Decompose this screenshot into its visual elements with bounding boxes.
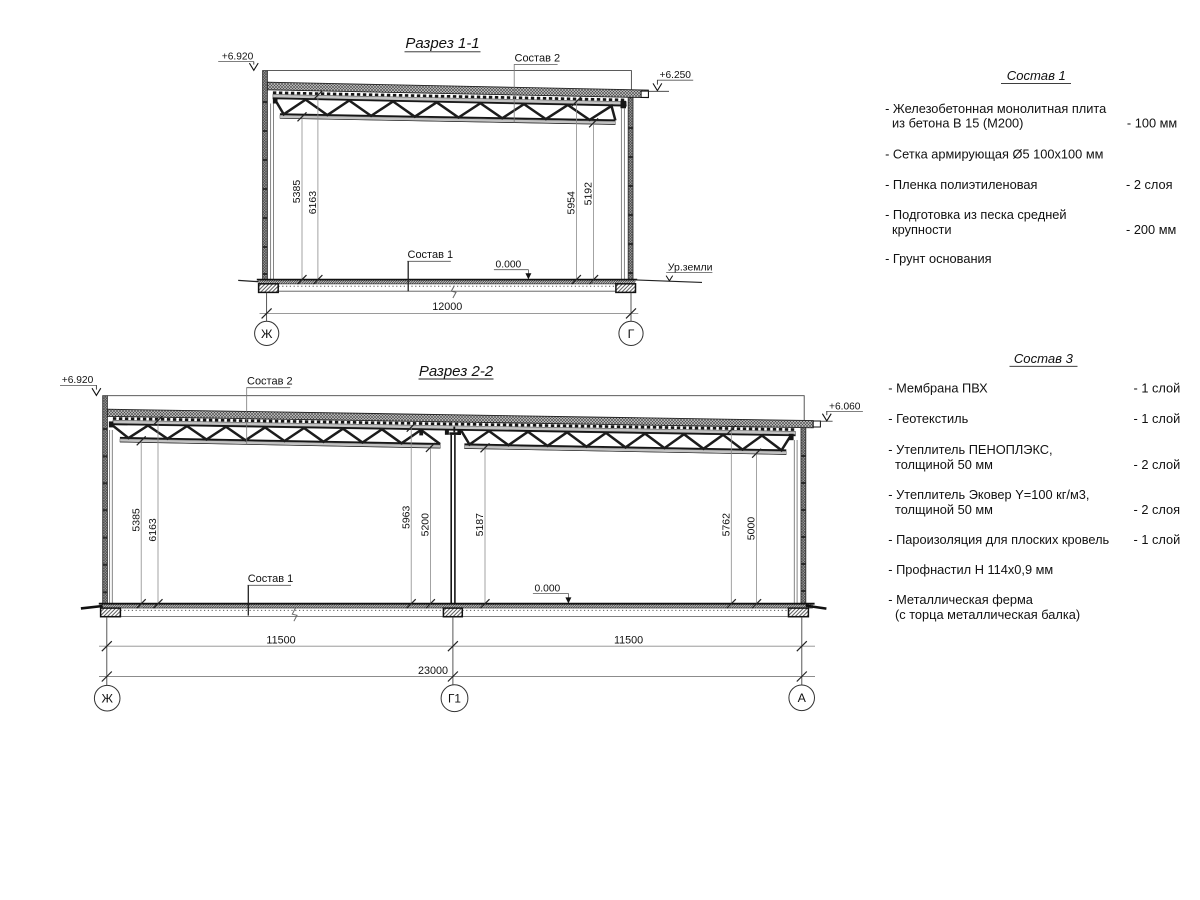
svg-text:толщиной 50 мм: толщиной 50 мм	[895, 457, 993, 472]
svg-text:+6.250: +6.250	[660, 70, 692, 81]
svg-text:толщиной 50 мм: толщиной 50 мм	[895, 502, 993, 517]
svg-text:крупности: крупности	[892, 222, 952, 237]
svg-text:5187: 5187	[474, 513, 486, 537]
svg-text:Г1: Г1	[448, 692, 461, 706]
svg-text:А: А	[798, 691, 807, 705]
svg-text:- Мембрана ПВХ: - Мембрана ПВХ	[888, 381, 988, 396]
svg-text:- 2 слоя: - 2 слоя	[1134, 502, 1181, 517]
svg-text:5000: 5000	[746, 517, 758, 541]
svg-text:Состав 1: Состав 1	[248, 573, 294, 585]
svg-text:- 2 слой: - 2 слой	[1134, 457, 1181, 472]
svg-text:- Утеплитель ПЕНОПЛЭКС,: - Утеплитель ПЕНОПЛЭКС,	[888, 442, 1052, 457]
svg-text:- Железобетонная монолитная п: - Железобетонная монолитная плита	[885, 101, 1107, 116]
svg-text:5200: 5200	[420, 513, 432, 537]
svg-text:5192: 5192	[583, 182, 595, 206]
svg-text:- 1 слой: - 1 слой	[1134, 532, 1181, 547]
svg-text:12000: 12000	[432, 301, 462, 313]
svg-text:Разрез 1-1: Разрез 1-1	[405, 35, 479, 52]
svg-text:+6.920: +6.920	[222, 52, 254, 63]
svg-text:Состав 3: Состав 3	[1014, 351, 1074, 366]
svg-text:- 200 мм: - 200 мм	[1126, 222, 1176, 237]
svg-text:23000: 23000	[418, 665, 448, 677]
svg-text:Состав 1: Состав 1	[1007, 68, 1066, 83]
svg-text:5954: 5954	[566, 191, 578, 215]
svg-text:- 100 мм: - 100 мм	[1127, 115, 1177, 130]
svg-text:0.000: 0.000	[496, 260, 522, 271]
svg-text:- 2 слоя: - 2 слоя	[1126, 177, 1173, 192]
svg-text:- Пароизоляция для плоских кро: - Пароизоляция для плоских кровель	[888, 532, 1109, 547]
svg-text:11500: 11500	[266, 635, 295, 647]
svg-text:11500: 11500	[614, 635, 643, 647]
svg-text:- Утеплитель Эковер Y=100 кг/м: - Утеплитель Эковер Y=100 кг/м3,	[888, 487, 1089, 502]
svg-text:6163: 6163	[147, 518, 159, 542]
svg-text:5963: 5963	[400, 505, 412, 529]
svg-text:Состав 2: Состав 2	[247, 376, 293, 388]
svg-text:Ж: Ж	[101, 692, 113, 706]
svg-text:(с торца металлическая балка): (с торца металлическая балка)	[895, 607, 1080, 622]
svg-text:- 1 слой: - 1 слой	[1134, 411, 1181, 426]
svg-text:5762: 5762	[720, 513, 732, 537]
svg-text:5385: 5385	[130, 508, 142, 532]
svg-text:- Подготовка из песка средней: - Подготовка из песка средней	[885, 207, 1066, 222]
svg-text:+6.060: +6.060	[829, 401, 861, 412]
svg-text:+6.920: +6.920	[62, 375, 94, 386]
svg-text:- 1 слой: - 1 слой	[1134, 381, 1181, 396]
svg-text:Состав 1: Состав 1	[408, 249, 454, 261]
svg-text:из бетона В 15 (М200): из бетона В 15 (М200)	[892, 115, 1023, 130]
svg-text:Г: Г	[628, 327, 635, 341]
svg-text:- Геотекстиль: - Геотекстиль	[888, 411, 968, 426]
svg-text:5385: 5385	[291, 180, 303, 204]
svg-text:- Металлическая ферма: - Металлическая ферма	[888, 592, 1033, 607]
svg-text:0.000: 0.000	[535, 583, 561, 594]
svg-text:- Профнастил Н 114х0,9 мм: - Профнастил Н 114х0,9 мм	[888, 562, 1053, 577]
svg-text:Разрез 2-2: Разрез 2-2	[419, 363, 494, 380]
svg-text:Состав 2: Состав 2	[515, 52, 561, 64]
svg-text:Ур.земли: Ур.земли	[668, 262, 713, 274]
svg-text:6163: 6163	[307, 191, 319, 215]
svg-text:Ж: Ж	[261, 327, 273, 341]
svg-text:- Грунт основания: - Грунт основания	[885, 251, 992, 266]
svg-text:- Сетка армирующая Ø5 100х100: - Сетка армирующая Ø5 100х100 мм	[885, 147, 1103, 162]
svg-text:- Пленка полиэтиленовая: - Пленка полиэтиленовая	[885, 177, 1037, 192]
